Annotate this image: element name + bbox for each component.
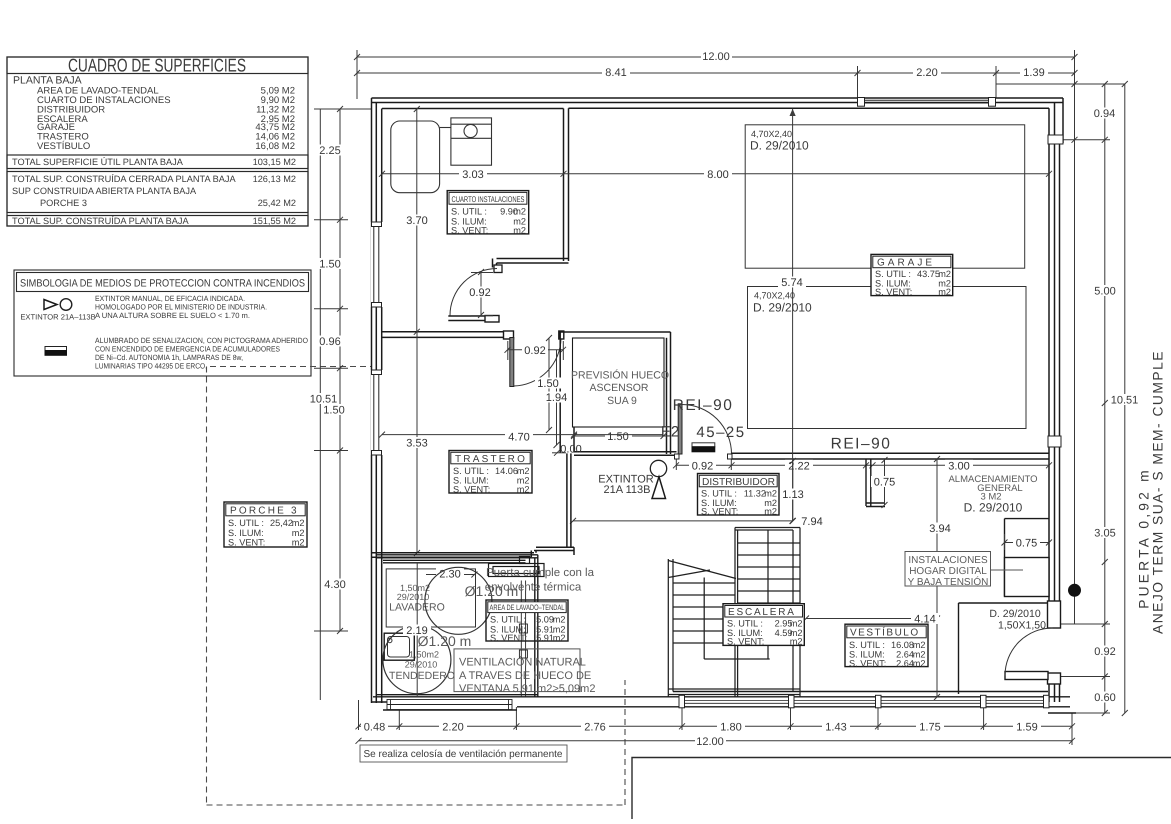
svg-text:4,70X2,40: 4,70X2,40 — [751, 129, 792, 139]
svg-text:S. VENT:: S. VENT: — [727, 637, 764, 647]
svg-text:0.92: 0.92 — [692, 460, 713, 472]
svg-text:3.00: 3.00 — [948, 460, 969, 472]
svg-text:EXTINTOR 21A–113B: EXTINTOR 21A–113B — [20, 313, 95, 322]
svg-text:S. UTIL :: S. UTIL : — [701, 488, 737, 498]
svg-text:HOGAR DIGITAL: HOGAR DIGITAL — [909, 566, 987, 577]
svg-text:S. UTIL :: S. UTIL : — [228, 518, 264, 528]
svg-text:3.94: 3.94 — [929, 523, 950, 535]
svg-text:m2: m2 — [292, 518, 305, 528]
svg-text:D. 29/2010: D. 29/2010 — [989, 608, 1041, 620]
svg-text:S. VENT:: S. VENT: — [490, 633, 527, 643]
svg-text:D. 29/2010: D. 29/2010 — [750, 139, 809, 153]
svg-text:PORCHE 3: PORCHE 3 — [40, 198, 87, 208]
svg-text:4.70: 4.70 — [508, 432, 529, 444]
svg-text:A TRAVES DE HUECO DE: A TRAVES DE HUECO DE — [459, 670, 591, 682]
svg-text:REI–90: REI–90 — [673, 397, 734, 414]
svg-text:12.00: 12.00 — [702, 51, 730, 63]
svg-text:m2: m2 — [553, 633, 566, 643]
svg-text:3.70: 3.70 — [406, 215, 427, 227]
svg-text:12.00: 12.00 — [696, 736, 724, 748]
svg-text:VESTÍBULO: VESTÍBULO — [850, 627, 920, 639]
svg-text:2.25: 2.25 — [319, 145, 340, 157]
svg-text:1,50m2: 1,50m2 — [409, 650, 439, 660]
svg-text:43.75: 43.75 — [917, 269, 940, 279]
svg-text:LUMINARIAS TIPO 44295 DE E: LUMINARIAS TIPO 44295 DE ERCO. — [95, 362, 207, 371]
svg-text:2.20: 2.20 — [916, 67, 937, 79]
svg-text:Puerta cumple con la: Puerta cumple con la — [486, 567, 595, 579]
svg-text:CUARTO INSTALACIONES: CUARTO INSTALACIONES — [452, 195, 525, 204]
svg-text:CUADRO DE SUPERFICIES: CUADRO DE SUPERFICIES — [68, 55, 246, 76]
svg-text:D. 29/2010: D. 29/2010 — [964, 501, 1023, 515]
svg-text:151,55 M2: 151,55 M2 — [253, 216, 296, 226]
svg-text:1.50: 1.50 — [607, 431, 628, 443]
svg-text:1.80: 1.80 — [720, 721, 741, 733]
svg-text:SIMBOLOGIA DE MEDIOS DE PROTEC: SIMBOLOGIA DE MEDIOS DE PROTECCION CONTR… — [20, 278, 305, 290]
svg-text:S. VENT:: S. VENT: — [849, 658, 886, 668]
svg-text:1.94: 1.94 — [546, 392, 567, 404]
svg-text:S. VENT:: S. VENT: — [453, 484, 490, 494]
svg-text:S. VENT:: S. VENT: — [701, 506, 738, 516]
svg-text:0.60: 0.60 — [1094, 692, 1115, 704]
svg-text:GARAJE: GARAJE — [877, 258, 935, 269]
svg-text:2.30: 2.30 — [439, 569, 460, 581]
svg-text:m2: m2 — [292, 538, 305, 548]
svg-text:0.75: 0.75 — [1016, 538, 1037, 550]
svg-text:m2: m2 — [292, 528, 305, 538]
svg-text:1.13: 1.13 — [782, 489, 803, 501]
svg-text:Se realiza celosía de ventilac: Se realiza celosía de ventilación perman… — [363, 749, 562, 760]
svg-text:8.00: 8.00 — [707, 169, 728, 181]
svg-text:TRASTERO: TRASTERO — [455, 454, 527, 465]
svg-text:3.03: 3.03 — [462, 169, 483, 181]
svg-text:TOTAL SUP. CONSTRUÍDA PLANTA B: TOTAL SUP. CONSTRUÍDA PLANTA BAJA — [12, 216, 190, 226]
svg-text:2.76: 2.76 — [584, 721, 605, 733]
svg-text:1.50: 1.50 — [537, 378, 558, 390]
svg-text:ASCENSOR: ASCENSOR — [590, 382, 649, 394]
svg-text:25,42: 25,42 — [270, 518, 293, 528]
svg-text:m2: m2 — [913, 640, 926, 650]
svg-text:1.59: 1.59 — [1016, 721, 1037, 733]
svg-text:VENTANA 5,91 m2>5,09m2: VENTANA 5,91 m2>5,09m2 — [459, 683, 595, 695]
svg-text:1.75: 1.75 — [919, 721, 940, 733]
svg-text:4,70X2,40: 4,70X2,40 — [754, 291, 795, 301]
svg-text:5.91: 5.91 — [536, 633, 554, 643]
svg-text:S. VENT:: S. VENT: — [228, 538, 265, 548]
svg-text:S. UTIL :: S. UTIL : — [490, 615, 526, 625]
svg-text:DISTRIBUIDOR: DISTRIBUIDOR — [702, 477, 775, 488]
svg-text:11.32: 11.32 — [744, 488, 766, 498]
svg-text:ESCALERA: ESCALERA — [728, 607, 796, 618]
svg-text:126,13 M2: 126,13 M2 — [253, 174, 296, 184]
svg-text:TOTAL SUP. CONSTRUÍDA CERRADA: TOTAL SUP. CONSTRUÍDA CERRADA PLANTA BAJ… — [12, 174, 236, 184]
svg-text:5.74: 5.74 — [781, 277, 802, 289]
svg-text:29/2010: 29/2010 — [405, 660, 438, 670]
svg-text:m2: m2 — [553, 615, 566, 625]
svg-text:2.64: 2.64 — [896, 658, 914, 668]
svg-text:m2: m2 — [790, 619, 803, 629]
svg-text:A UNA ALTURA SOBRE EL SUE: A UNA ALTURA SOBRE EL SUELO < 1.70 m. — [95, 311, 250, 320]
svg-text:0.92: 0.92 — [1094, 646, 1115, 658]
svg-text:2.19: 2.19 — [406, 625, 427, 637]
svg-text:S. VENT:: S. VENT: — [451, 226, 488, 236]
svg-text:S. UTIL :: S. UTIL : — [451, 207, 487, 217]
svg-text:TENDEDERO: TENDEDERO — [389, 670, 455, 682]
svg-text:7.94: 7.94 — [801, 516, 822, 528]
svg-text:3.53: 3.53 — [406, 438, 427, 450]
svg-text:m2: m2 — [790, 637, 803, 647]
svg-text:Y BAJA TENSIÓN: Y BAJA TENSIÓN — [908, 576, 989, 588]
svg-text:D. 29/2010: D. 29/2010 — [753, 301, 812, 315]
svg-text:REI–90: REI–90 — [831, 436, 892, 453]
svg-text:ANEJO TERM SUA- S MEM- CUMPLE: ANEJO TERM SUA- S MEM- CUMPLE — [1151, 350, 1166, 634]
svg-text:m2: m2 — [938, 269, 951, 279]
svg-text:5.09: 5.09 — [536, 615, 554, 625]
svg-text:0.94: 0.94 — [1094, 108, 1115, 120]
svg-text:21A 113B: 21A 113B — [604, 484, 651, 496]
svg-text:16.08: 16.08 — [891, 640, 914, 650]
svg-text:envolvente térmica: envolvente térmica — [485, 582, 582, 594]
svg-text:PUERTA 0,92 m: PUERTA 0,92 m — [1137, 467, 1152, 609]
svg-text:m2: m2 — [513, 226, 526, 236]
svg-text:5.00: 5.00 — [1094, 286, 1115, 298]
svg-text:S. ILUM:: S. ILUM: — [228, 528, 264, 538]
svg-text:SUA 9: SUA 9 — [607, 395, 637, 407]
svg-text:S. UTIL :: S. UTIL : — [453, 466, 489, 476]
svg-text:S. VENT:: S. VENT: — [875, 287, 912, 297]
svg-text:E2: E2 — [661, 424, 679, 441]
svg-text:10.51: 10.51 — [1111, 395, 1139, 407]
svg-text:S. UTIL :: S. UTIL : — [727, 619, 763, 629]
svg-text:0.92: 0.92 — [469, 287, 490, 299]
svg-text:PREVISIÓN HUECO: PREVISIÓN HUECO — [571, 369, 669, 382]
svg-text:AREA DE LAVADO–TENDAL: AREA DE LAVADO–TENDAL — [490, 603, 565, 612]
svg-text:VESTÍBULO: VESTÍBULO — [37, 140, 90, 152]
svg-text:1,50X1,50: 1,50X1,50 — [998, 620, 1046, 632]
svg-text:14.06: 14.06 — [495, 466, 518, 476]
svg-text:m2: m2 — [513, 207, 526, 217]
svg-text:0.48: 0.48 — [364, 721, 385, 733]
svg-text:1.50: 1.50 — [319, 259, 340, 271]
svg-text:1.50: 1.50 — [323, 405, 344, 417]
svg-text:16,08 M2: 16,08 M2 — [255, 141, 295, 152]
svg-text:8.41: 8.41 — [605, 67, 626, 79]
svg-text:m2: m2 — [517, 484, 530, 494]
svg-text:S. UTIL :: S. UTIL : — [875, 269, 911, 279]
svg-text:103,15 M2: 103,15 M2 — [253, 157, 296, 167]
svg-text:3.05: 3.05 — [1094, 528, 1115, 540]
svg-text:0.96: 0.96 — [319, 336, 340, 348]
svg-text:TOTAL SUPERFICIE ÚTIL PLANTA B: TOTAL SUPERFICIE ÚTIL PLANTA BAJA — [12, 157, 184, 167]
svg-text:m2: m2 — [517, 466, 530, 476]
svg-text:VENTILACIÓN NATURAL: VENTILACIÓN NATURAL — [459, 656, 586, 669]
svg-text:INSTALACIONES: INSTALACIONES — [908, 555, 988, 566]
svg-text:4.30: 4.30 — [324, 579, 345, 591]
svg-text:SUP CONSTRUIDA ABIERTA PLANTA: SUP CONSTRUIDA ABIERTA PLANTA BAJA — [12, 186, 197, 196]
svg-text:25,42 M2: 25,42 M2 — [258, 198, 296, 208]
svg-text:1.39: 1.39 — [1023, 67, 1044, 79]
svg-text:45–25: 45–25 — [696, 424, 745, 441]
svg-text:0.92: 0.92 — [524, 345, 545, 357]
svg-text:2.20: 2.20 — [442, 721, 463, 733]
svg-text:m2: m2 — [938, 287, 951, 297]
svg-text:1.43: 1.43 — [825, 721, 846, 733]
svg-text:m2: m2 — [764, 506, 777, 516]
svg-text:m2: m2 — [764, 488, 777, 498]
svg-text:S. UTIL :: S. UTIL : — [849, 640, 885, 650]
svg-text:PORCHE 3: PORCHE 3 — [230, 506, 299, 517]
svg-text:0.75: 0.75 — [874, 477, 895, 489]
svg-text:m2: m2 — [913, 658, 926, 668]
